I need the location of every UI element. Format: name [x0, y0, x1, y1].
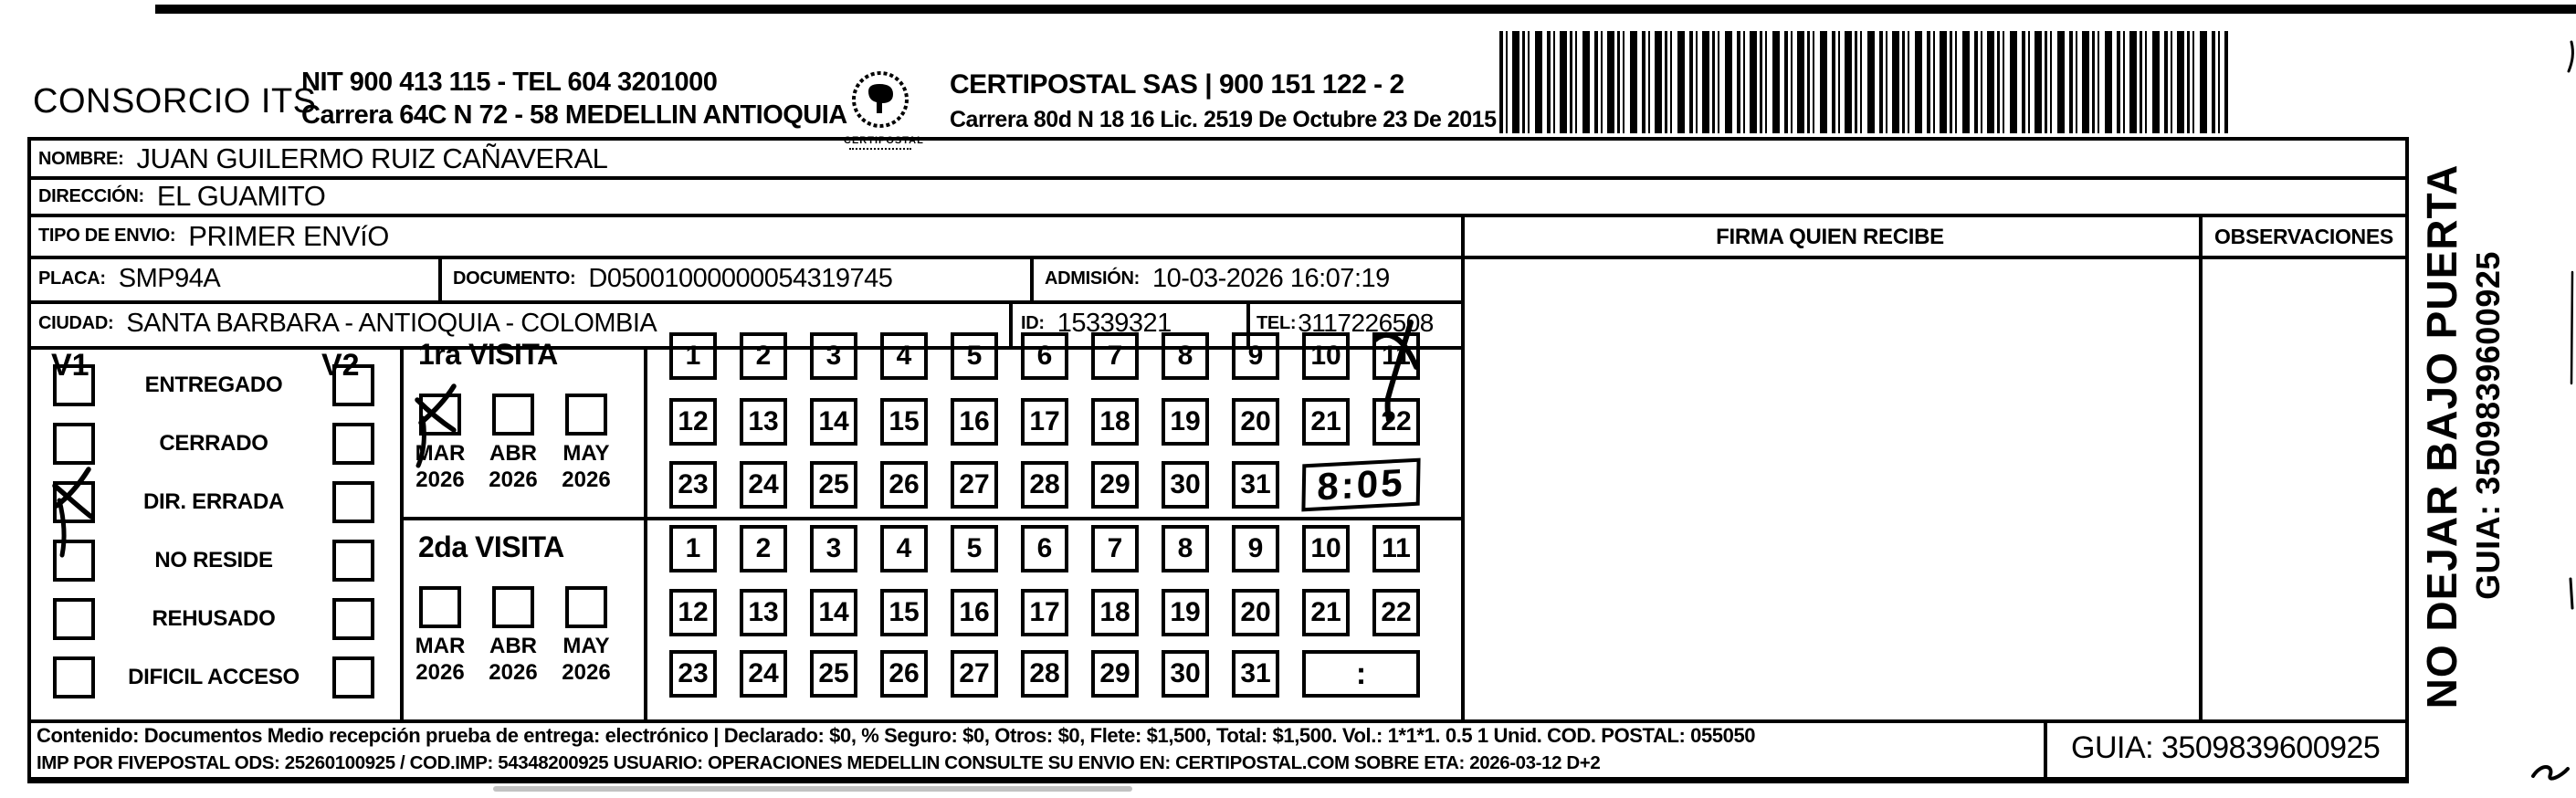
day-grid-row: 2324252627282930318:05 — [669, 461, 1420, 509]
footer-imp-line: IMP POR FIVEPOSTAL ODS: 25260100925 / CO… — [37, 752, 2036, 774]
second-visit-day-checkbox-8[interactable]: 8 — [1162, 525, 1209, 572]
v1-checkbox-cerrado[interactable] — [53, 423, 95, 465]
status-row-dir-errada: DIR. ERRADA — [31, 481, 396, 540]
company-name: CONSORCIO ITS — [33, 82, 317, 121]
grid-line — [1461, 214, 1465, 719]
admision-label: ADMISIÓN: — [1045, 268, 1140, 289]
documento-label: DOCUMENTO: — [453, 268, 575, 289]
second-visit-month-mar: MAR2026 — [411, 586, 469, 686]
documento-cell: DOCUMENTO: D05001000000054319745 — [453, 258, 892, 299]
first-visit-day-checkbox-15[interactable]: 15 — [880, 398, 928, 446]
second-visit-day-checkbox-28[interactable]: 28 — [1021, 650, 1068, 698]
scan-edge-mark — [2571, 579, 2572, 608]
documento-value: D05001000000054319745 — [588, 264, 892, 294]
first-visit-day-checkbox-6[interactable]: 6 — [1021, 332, 1068, 380]
first-visit-day-checkbox-23[interactable]: 23 — [669, 461, 717, 509]
scan-smudge — [493, 786, 1132, 792]
year-label: 2026 — [557, 660, 615, 686]
shipment-type-value: PRIMER ENVíO — [188, 220, 389, 253]
first-visit-day-checkbox-5[interactable]: 5 — [951, 332, 998, 380]
second-visit-day-checkbox-13[interactable]: 13 — [740, 589, 787, 636]
first-visit-month-may: MAY2026 — [557, 394, 615, 493]
first-visit-day-checkbox-31[interactable]: 31 — [1232, 461, 1279, 509]
second-visit-day-checkbox-30[interactable]: 30 — [1162, 650, 1209, 698]
name-label: NOMBRE: — [38, 149, 123, 170]
v2-checkbox-rehusado[interactable] — [332, 598, 374, 640]
first-visit-day-checkbox-2[interactable]: 2 — [740, 332, 787, 380]
second-visit-checkbox-may[interactable] — [565, 586, 607, 628]
first-visit-day-grid: 1234567891011 1213141516171819202122 232… — [644, 332, 1461, 520]
status-label-dificil-acceso: DIFICIL ACCESO — [95, 665, 332, 690]
second-visit-day-checkbox-15[interactable]: 15 — [880, 589, 928, 636]
status-label-rehusado: REHUSADO — [95, 606, 332, 632]
first-visit-panel: 1ra VISITA MAR2026ABR2026MAY2026 — [402, 334, 643, 493]
status-row-dificil-acceso: DIFICIL ACCESO — [31, 656, 396, 715]
scan-edge-mark — [2571, 272, 2572, 383]
scan-squiggle — [2533, 767, 2568, 779]
second-visit-day-checkbox-16[interactable]: 16 — [951, 589, 998, 636]
first-visit-month-mar: MAR2026 — [411, 394, 469, 493]
recipient-name: JUAN GUILERMO RUIZ CAÑAVERAL — [136, 142, 607, 175]
second-visit-month-may: MAY2026 — [557, 586, 615, 686]
company-nit-tel: NIT 900 413 115 - TEL 604 3201000 — [301, 66, 847, 99]
first-visit-day-checkbox-11-marked[interactable]: 11 — [1372, 332, 1420, 380]
second-visit-day-checkbox-17[interactable]: 17 — [1021, 589, 1068, 636]
second-visit-month-abr: ABR2026 — [484, 586, 542, 686]
v2-checkbox-entregado[interactable] — [332, 364, 374, 406]
provider-address: Carrera 80d N 18 16 Lic. 2519 De Octubre… — [950, 107, 1496, 133]
second-visit-day-checkbox-10[interactable]: 10 — [1302, 525, 1350, 572]
v2-checkbox-dificil-acceso[interactable] — [332, 656, 374, 698]
name-row: NOMBRE: JUAN GUILERMO RUIZ CAÑAVERAL — [38, 141, 607, 177]
delivery-status-panel: ENTREGADOCERRADODIR. ERRADANO RESIDEREHU… — [31, 364, 396, 715]
status-row-cerrado: CERRADO — [31, 423, 396, 481]
provider-block: CERTIPOSTAL SAS | 900 151 122 - 2 Carrer… — [950, 69, 1496, 133]
first-visit-checkbox-abr[interactable] — [492, 394, 534, 436]
grid-line — [1030, 256, 1034, 300]
admision-value: 10-03-2026 16:07:19 — [1152, 264, 1390, 294]
first-visit-day-checkbox-18[interactable]: 18 — [1091, 398, 1139, 446]
first-visit-day-checkbox-14[interactable]: 14 — [810, 398, 857, 446]
year-label: 2026 — [411, 467, 469, 493]
status-label-dir-errada: DIR. ERRADA — [95, 489, 332, 515]
second-visit-checkbox-mar[interactable] — [419, 586, 461, 628]
grid-line — [2199, 214, 2203, 719]
id-label: ID: — [1021, 313, 1045, 334]
day-grid-row: 1234567891011 — [669, 332, 1420, 380]
first-visit-day-checkbox-7[interactable]: 7 — [1091, 332, 1139, 380]
address-label: DIRECCIÓN: — [38, 186, 144, 207]
year-label: 2026 — [484, 660, 542, 686]
placa-label: PLACA: — [38, 268, 106, 289]
first-visit-day-checkbox-20[interactable]: 20 — [1232, 398, 1279, 446]
month-label: MAR — [411, 441, 469, 467]
first-visit-day-checkbox-25[interactable]: 25 — [810, 461, 857, 509]
second-visit-day-checkbox-4[interactable]: 4 — [880, 525, 928, 572]
first-visit-day-checkbox-3[interactable]: 3 — [810, 332, 857, 380]
first-visit-day-checkbox-28[interactable]: 28 — [1021, 461, 1068, 509]
status-label-no-reside: NO RESIDE — [95, 548, 332, 573]
second-visit-day-checkbox-27[interactable]: 27 — [951, 650, 998, 698]
second-visit-day-checkbox-12[interactable]: 12 — [669, 589, 717, 636]
v1-checkbox-dir-errada-checked[interactable] — [53, 481, 95, 523]
second-visit-day-checkbox-6[interactable]: 6 — [1021, 525, 1068, 572]
first-visit-day-checkbox-8[interactable]: 8 — [1162, 332, 1209, 380]
second-visit-panel: 2da VISITA MAR2026ABR2026MAY2026 — [402, 527, 643, 686]
first-visit-day-checkbox-10[interactable]: 10 — [1302, 332, 1350, 380]
provider-name: CERTIPOSTAL SAS | 900 151 122 - 2 — [950, 69, 1496, 100]
guia-number-box: GUIA: 3509839600925 — [2044, 719, 2409, 777]
first-visit-day-checkbox-17[interactable]: 17 — [1021, 398, 1068, 446]
second-visit-day-checkbox-19[interactable]: 19 — [1162, 589, 1209, 636]
first-visit-day-checkbox-4[interactable]: 4 — [880, 332, 928, 380]
second-visit-day-checkbox-23[interactable]: 23 — [669, 650, 717, 698]
second-visit-day-checkbox-31[interactable]: 31 — [1232, 650, 1279, 698]
first-visit-day-checkbox-24[interactable]: 24 — [740, 461, 787, 509]
scan-top-strip — [155, 5, 2576, 14]
first-visit-day-checkbox-12[interactable]: 12 — [669, 398, 717, 446]
certipostal-stamp-icon — [850, 69, 910, 130]
first-visit-month-abr: ABR2026 — [484, 394, 542, 493]
second-visit-day-checkbox-3[interactable]: 3 — [810, 525, 857, 572]
second-visit-day-checkbox-18[interactable]: 18 — [1091, 589, 1139, 636]
second-visit-day-checkbox-20[interactable]: 20 — [1232, 589, 1279, 636]
second-visit-day-checkbox-25[interactable]: 25 — [810, 650, 857, 698]
tel-label: TEL: — [1256, 313, 1296, 334]
second-visit-day-checkbox-7[interactable]: 7 — [1091, 525, 1139, 572]
second-visit-title: 2da VISITA — [418, 530, 643, 564]
year-label: 2026 — [411, 660, 469, 686]
month-label: ABR — [484, 441, 542, 467]
placa-value: SMP94A — [119, 264, 220, 294]
placa-cell: PLACA: SMP94A — [38, 258, 220, 299]
no-dejar-bajo-puerta-warning: NO DEJAR BAJO PUERTA — [2416, 153, 2467, 719]
v2-checkbox-dir-errada[interactable] — [332, 481, 374, 523]
recipient-address: EL GUAMITO — [157, 180, 325, 213]
admision-cell: ADMISIÓN: 10-03-2026 16:07:19 — [1045, 258, 1390, 299]
first-visit-checkbox-mar-checked[interactable] — [419, 394, 461, 436]
second-visit-day-checkbox-11[interactable]: 11 — [1372, 525, 1420, 572]
month-label: ABR — [484, 634, 542, 659]
shipment-type-row: TIPO DE ENVIO: PRIMER ENVíO — [38, 216, 389, 256]
first-visit-day-checkbox-26[interactable]: 26 — [880, 461, 928, 509]
second-visit-day-checkbox-29[interactable]: 29 — [1091, 650, 1139, 698]
month-label: MAY — [557, 634, 615, 659]
second-visit-day-checkbox-22[interactable]: 22 — [1372, 589, 1420, 636]
grid-line — [438, 256, 442, 300]
second-visit-months: MAR2026ABR2026MAY2026 — [402, 586, 643, 686]
first-visit-day-checkbox-16[interactable]: 16 — [951, 398, 998, 446]
second-visit-time-box[interactable]: : — [1302, 650, 1420, 698]
first-visit-day-checkbox-19[interactable]: 19 — [1162, 398, 1209, 446]
first-visit-day-checkbox-22[interactable]: 22 — [1372, 398, 1420, 446]
footer-content-line: Contenido: Documentos Medio recepción pr… — [37, 724, 2036, 748]
first-visit-title: 1ra VISITA — [418, 338, 643, 372]
company-address: Carrera 64C N 72 - 58 MEDELLIN ANTIOQUIA — [301, 99, 847, 131]
scan-edge-mark — [2569, 42, 2572, 71]
second-visit-day-grid: 1234567891011 1213141516171819202122 232… — [644, 525, 1461, 712]
status-label-cerrado: CERRADO — [95, 431, 332, 457]
status-label-entregado: ENTREGADO — [95, 373, 332, 398]
first-visit-time-box[interactable]: 8:05 — [1301, 458, 1420, 512]
footer-block: Contenido: Documentos Medio recepción pr… — [37, 724, 2036, 774]
second-visit-day-checkbox-24[interactable]: 24 — [740, 650, 787, 698]
v2-checkbox-no-reside[interactable] — [332, 540, 374, 582]
day-grid-row: 1213141516171819202122 — [669, 398, 1420, 446]
first-visit-checkbox-may[interactable] — [565, 394, 607, 436]
year-label: 2026 — [557, 467, 615, 493]
first-visit-day-checkbox-1[interactable]: 1 — [669, 332, 717, 380]
company-info: NIT 900 413 115 - TEL 604 3201000 Carrer… — [301, 66, 847, 131]
second-visit-day-checkbox-2[interactable]: 2 — [740, 525, 787, 572]
v1-checkbox-entregado[interactable] — [53, 364, 95, 406]
shipment-type-label: TIPO DE ENVIO: — [38, 226, 175, 247]
status-row-entregado: ENTREGADO — [31, 364, 396, 423]
day-grid-row: 1213141516171819202122 — [669, 589, 1420, 636]
v1-checkbox-rehusado[interactable] — [53, 598, 95, 640]
first-visit-day-checkbox-13[interactable]: 13 — [740, 398, 787, 446]
firma-column-header: FIRMA QUIEN RECIBE — [1465, 225, 2195, 250]
first-visit-day-checkbox-21[interactable]: 21 — [1302, 398, 1350, 446]
first-visit-day-checkbox-27[interactable]: 27 — [951, 461, 998, 509]
address-row: DIRECCIÓN: EL GUAMITO — [38, 179, 325, 214]
first-visit-months: MAR2026ABR2026MAY2026 — [402, 394, 643, 493]
day-grid-row: 232425262728293031: — [669, 650, 1420, 698]
barcode — [1499, 31, 2228, 133]
first-visit-day-checkbox-29[interactable]: 29 — [1091, 461, 1139, 509]
year-label: 2026 — [484, 467, 542, 493]
v1-checkbox-dificil-acceso[interactable] — [53, 656, 95, 698]
month-label: MAR — [411, 634, 469, 659]
observaciones-column-header: OBSERVACIONES — [2203, 225, 2405, 249]
shipping-guide-form: CONSORCIO ITS NIT 900 413 115 - TEL 604 … — [0, 0, 2576, 798]
second-visit-checkbox-abr[interactable] — [492, 586, 534, 628]
second-visit-day-checkbox-9[interactable]: 9 — [1232, 525, 1279, 572]
month-label: MAY — [557, 441, 615, 467]
first-visit-day-checkbox-9[interactable]: 9 — [1232, 332, 1279, 380]
second-visit-day-checkbox-14[interactable]: 14 — [810, 589, 857, 636]
second-visit-day-checkbox-1[interactable]: 1 — [669, 525, 717, 572]
second-visit-day-checkbox-21[interactable]: 21 — [1302, 589, 1350, 636]
v2-checkbox-cerrado[interactable] — [332, 423, 374, 465]
status-row-rehusado: REHUSADO — [31, 598, 396, 656]
second-visit-day-checkbox-5[interactable]: 5 — [951, 525, 998, 572]
v1-checkbox-no-reside[interactable] — [53, 540, 95, 582]
ciudad-label: CIUDAD: — [38, 313, 113, 334]
first-visit-day-checkbox-30[interactable]: 30 — [1162, 461, 1209, 509]
status-row-no-reside: NO RESIDE — [31, 540, 396, 598]
second-visit-day-checkbox-26[interactable]: 26 — [880, 650, 928, 698]
side-guia-number: GUIA: 3509839600925 — [2469, 179, 2508, 672]
day-grid-row: 1234567891011 — [669, 525, 1420, 572]
